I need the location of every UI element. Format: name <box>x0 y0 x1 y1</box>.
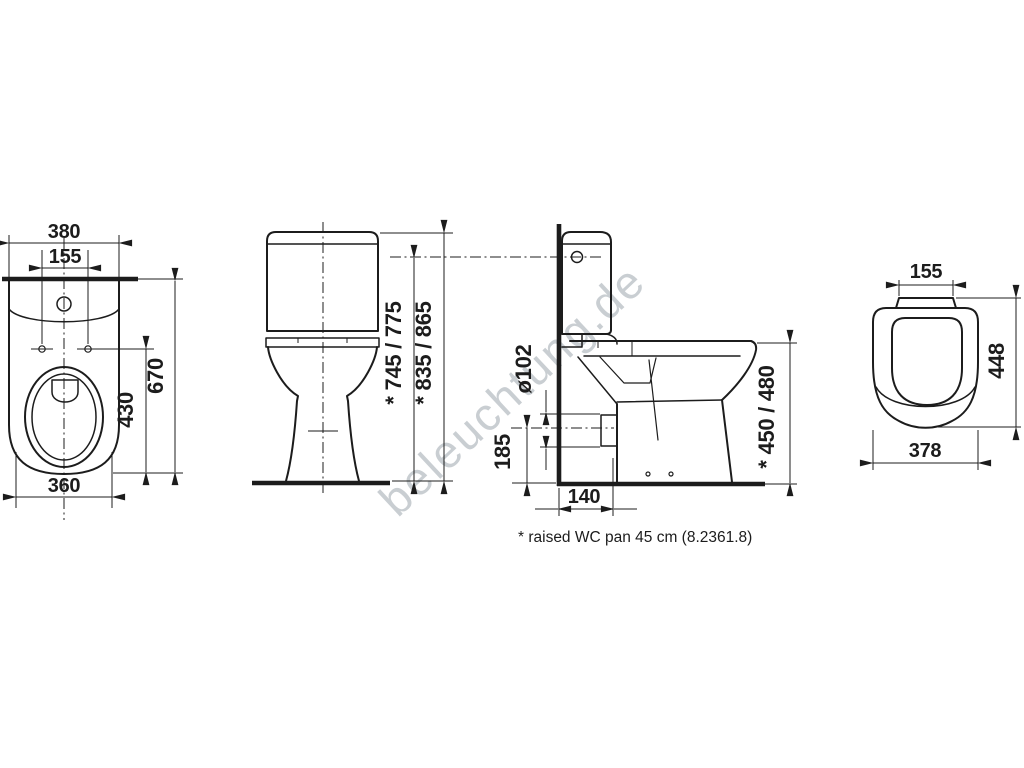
front-foot-edge <box>722 400 732 482</box>
footnote-text: * raised WC pan 45 cm (8.2361.8) <box>518 529 752 546</box>
seat-view: 155 448 378 <box>873 261 1021 470</box>
dim-height-to-lever: * 745 / 775 <box>381 258 414 481</box>
flush-spreader <box>52 380 78 402</box>
seat-bottom-inner-arc <box>876 387 975 407</box>
dim-label-745-775: * 745 / 775 <box>381 301 406 404</box>
dim-depth-overall: 670 <box>113 281 183 473</box>
dim-rim-height: * 450 / 480 <box>754 343 797 483</box>
fixing-hole-side-1 <box>646 472 650 476</box>
fixing-hole-right <box>77 346 99 352</box>
bowl-nose-curve <box>722 341 756 400</box>
drawing-canvas: beleuchtung.de 380 <box>0 0 1024 768</box>
dim-label-140: 140 <box>568 486 601 508</box>
dim-hinge-width: 155 <box>899 261 953 296</box>
dim-label-155-seat: 155 <box>910 261 943 283</box>
fixing-hole-side-2 <box>669 472 673 476</box>
trap-diagonal <box>649 360 658 440</box>
fixing-hole-left <box>31 346 53 352</box>
dim-label-380: 380 <box>48 221 81 243</box>
dim-seat-width: 378 <box>873 430 978 470</box>
bowl-underside <box>617 400 722 402</box>
technical-drawing: beleuchtung.de 380 <box>0 0 1024 768</box>
trap-inlet-lines <box>600 357 656 383</box>
outlet-stub <box>601 415 617 446</box>
seat-hinge-tab <box>896 298 956 308</box>
dim-outlet-offset: 140 <box>535 458 637 516</box>
dim-label-430: 430 <box>113 392 138 428</box>
dim-label-155-top: 155 <box>49 246 82 268</box>
bowl-right-profile <box>347 347 377 481</box>
dim-label-670: 670 <box>143 358 168 394</box>
dim-hole-depth: 430 <box>99 349 154 472</box>
dim-label-185: 185 <box>490 434 515 470</box>
dim-label-450-480: * 450 / 480 <box>754 365 779 468</box>
seat-opening <box>892 318 962 405</box>
dim-label-378: 378 <box>909 440 942 462</box>
dim-label-o102: ø102 <box>511 344 536 393</box>
bowl-left-profile <box>268 347 298 481</box>
dim-label-835-865: * 835 / 865 <box>411 301 436 404</box>
dim-hole-spacing: 155 <box>42 246 88 344</box>
dim-label-360: 360 <box>48 475 81 497</box>
back-slant <box>578 357 617 404</box>
top-view: 380 155 670 430 360 <box>2 221 183 520</box>
dim-label-448: 448 <box>984 343 1009 379</box>
